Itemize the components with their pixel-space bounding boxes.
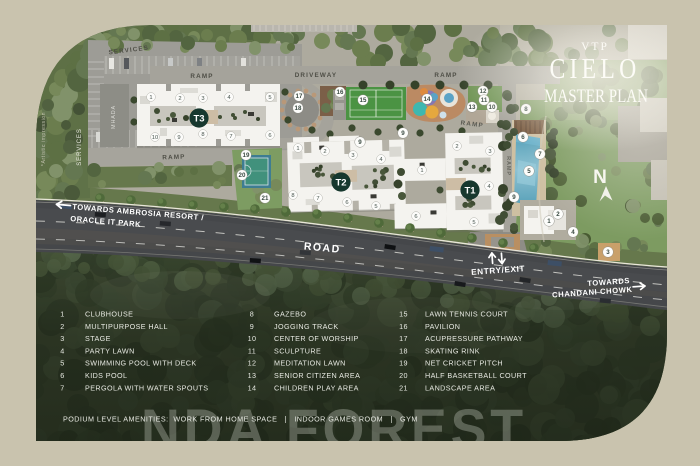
svg-text:16: 16 xyxy=(337,89,344,96)
svg-text:JOGGING TRACK: JOGGING TRACK xyxy=(274,322,339,331)
svg-text:ACUPRESSURE PATHWAY: ACUPRESSURE PATHWAY xyxy=(425,334,523,343)
svg-text:VTP: VTP xyxy=(581,41,609,53)
svg-text:2: 2 xyxy=(455,144,458,150)
svg-text:19: 19 xyxy=(243,152,250,159)
svg-text:16: 16 xyxy=(399,322,408,331)
svg-text:SWIMMING POOL WITH DECK: SWIMMING POOL WITH DECK xyxy=(85,359,197,368)
svg-text:5: 5 xyxy=(60,359,64,368)
svg-text:3: 3 xyxy=(606,249,610,256)
svg-text:8: 8 xyxy=(250,310,254,319)
svg-text:T3: T3 xyxy=(193,113,204,124)
svg-text:1: 1 xyxy=(296,146,299,152)
svg-text:MASTER PLAN: MASTER PLAN xyxy=(544,86,648,107)
svg-text:21: 21 xyxy=(399,383,408,392)
svg-text:DRIVEWAY: DRIVEWAY xyxy=(295,72,338,79)
svg-text:21: 21 xyxy=(262,195,269,202)
svg-text:7: 7 xyxy=(60,383,64,392)
svg-text:CLUBHOUSE: CLUBHOUSE xyxy=(85,310,133,319)
svg-text:2: 2 xyxy=(323,149,326,155)
svg-text:18: 18 xyxy=(295,105,302,112)
svg-text:RAMP: RAMP xyxy=(190,73,213,80)
svg-text:SCULPTURE: SCULPTURE xyxy=(274,346,321,355)
svg-text:14: 14 xyxy=(424,96,431,103)
svg-text:7: 7 xyxy=(316,196,319,202)
svg-text:17: 17 xyxy=(296,93,303,100)
svg-text:5: 5 xyxy=(268,95,271,101)
svg-text:1: 1 xyxy=(60,310,64,319)
svg-text:LANDSCAPE AREA: LANDSCAPE AREA xyxy=(425,383,495,392)
svg-text:1: 1 xyxy=(420,168,423,174)
svg-text:*Artistic impression: *Artistic impression xyxy=(41,112,47,166)
svg-text:5: 5 xyxy=(472,220,475,226)
svg-text:PERGOLA WITH WATER SPOUTS: PERGOLA WITH WATER SPOUTS xyxy=(85,383,208,392)
svg-text:RAMP: RAMP xyxy=(505,156,511,176)
svg-text:20: 20 xyxy=(239,172,246,179)
svg-text:9: 9 xyxy=(512,194,516,201)
svg-text:PODIUM LEVEL AMENITIES: WORK: PODIUM LEVEL AMENITIES: WORK FROM HOME S… xyxy=(63,415,418,424)
svg-text:MHADA: MHADA xyxy=(111,105,117,129)
svg-text:RAMP: RAMP xyxy=(434,72,457,79)
svg-text:MULTIPURPOSE HALL: MULTIPURPOSE HALL xyxy=(85,322,168,331)
svg-text:STAGE: STAGE xyxy=(85,334,111,343)
svg-text:CENTER OF WORSHIP: CENTER OF WORSHIP xyxy=(274,334,359,343)
svg-text:6: 6 xyxy=(345,200,348,206)
svg-text:8: 8 xyxy=(291,193,294,199)
svg-text:15: 15 xyxy=(360,97,367,104)
svg-text:4: 4 xyxy=(60,346,64,355)
svg-text:8: 8 xyxy=(201,132,204,138)
svg-text:NET CRICKET PITCH: NET CRICKET PITCH xyxy=(425,359,503,368)
svg-text:PAVILION: PAVILION xyxy=(425,322,460,331)
svg-text:19: 19 xyxy=(399,359,408,368)
svg-text:12: 12 xyxy=(248,359,257,368)
svg-text:9: 9 xyxy=(401,130,405,137)
svg-text:18: 18 xyxy=(399,346,408,355)
svg-text:3: 3 xyxy=(201,96,204,102)
svg-text:3: 3 xyxy=(351,153,354,159)
svg-text:11: 11 xyxy=(248,346,256,355)
svg-text:5: 5 xyxy=(374,204,377,210)
svg-text:17: 17 xyxy=(399,334,408,343)
svg-text:RAMP: RAMP xyxy=(162,154,186,162)
svg-text:HALF BASKETBALL COURT: HALF BASKETBALL COURT xyxy=(425,371,527,380)
svg-text:20: 20 xyxy=(399,371,408,380)
svg-text:2: 2 xyxy=(60,322,64,331)
svg-text:3: 3 xyxy=(60,334,64,343)
svg-text:SERVICES: SERVICES xyxy=(77,128,83,165)
svg-text:10: 10 xyxy=(152,135,158,141)
svg-text:6: 6 xyxy=(414,214,417,220)
svg-text:1: 1 xyxy=(547,218,551,225)
svg-text:T1: T1 xyxy=(464,185,476,196)
svg-text:LAWN TENNIS COURT: LAWN TENNIS COURT xyxy=(425,310,508,319)
svg-text:PARTY LAWN: PARTY LAWN xyxy=(85,346,135,355)
svg-text:SKATING RINK: SKATING RINK xyxy=(425,346,480,355)
svg-text:GAZEBO: GAZEBO xyxy=(274,310,306,319)
svg-text:9: 9 xyxy=(177,135,180,141)
svg-text:KIDS POOL: KIDS POOL xyxy=(85,371,127,380)
svg-text:15: 15 xyxy=(399,310,408,319)
svg-text:3: 3 xyxy=(488,149,491,155)
svg-text:9: 9 xyxy=(250,322,254,331)
svg-text:14: 14 xyxy=(248,383,257,392)
svg-text:7: 7 xyxy=(229,134,232,140)
svg-text:N: N xyxy=(593,167,607,188)
svg-text:CIELO: CIELO xyxy=(550,54,641,85)
svg-text:6: 6 xyxy=(60,371,64,380)
svg-text:2: 2 xyxy=(178,96,181,102)
svg-text:1: 1 xyxy=(149,95,152,101)
svg-text:2: 2 xyxy=(556,211,560,218)
svg-text:4: 4 xyxy=(571,229,575,236)
svg-text:MEDITATION LAWN: MEDITATION LAWN xyxy=(274,359,346,368)
svg-text:CHILDREN PLAY AREA: CHILDREN PLAY AREA xyxy=(274,383,359,392)
svg-text:9: 9 xyxy=(358,139,362,146)
svg-text:T2: T2 xyxy=(335,177,346,188)
svg-text:13: 13 xyxy=(248,371,257,380)
svg-text:10: 10 xyxy=(248,334,257,343)
svg-text:6: 6 xyxy=(268,133,271,139)
svg-text:SENIOR CITIZEN AREA: SENIOR CITIZEN AREA xyxy=(274,371,360,380)
